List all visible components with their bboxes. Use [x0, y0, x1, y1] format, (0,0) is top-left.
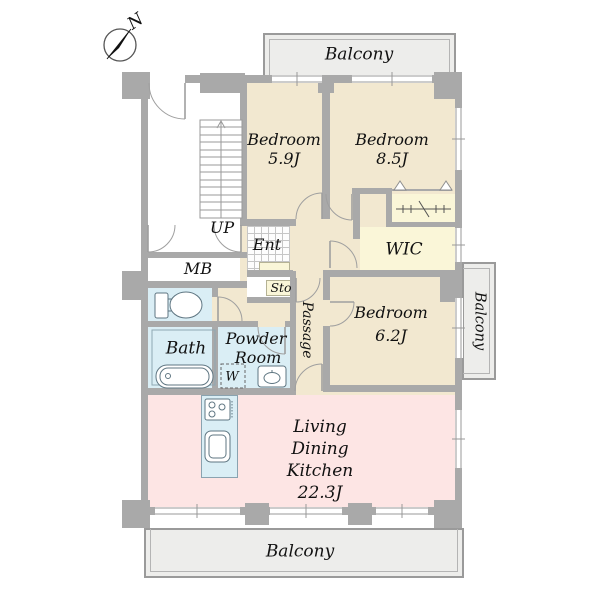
ldk-label-line1: Living — [287, 416, 353, 438]
bedroom1-name: Bedroom — [247, 132, 321, 148]
folding-door-marks — [394, 181, 452, 190]
powder-room-label-1: Powder — [226, 331, 287, 347]
entrance-label: Ent — [253, 237, 281, 253]
bedroom3-name: Bedroom — [354, 305, 428, 321]
powder-sink-icon — [258, 366, 286, 387]
toilet-icon — [155, 292, 202, 318]
door-wic — [330, 241, 357, 268]
bedroom2-name: Bedroom — [355, 132, 429, 148]
door-ldk — [295, 364, 322, 391]
bathtub-icon — [156, 365, 213, 388]
door-bedroom3 — [330, 302, 354, 326]
washer-label: W — [225, 371, 238, 384]
balcony-top-label: Balcony — [325, 47, 393, 64]
compass-icon — [104, 29, 136, 61]
ldk-label-line2: Dining — [287, 438, 353, 460]
door-toilet — [218, 297, 242, 321]
window — [272, 72, 322, 86]
balcony-right-label: Balcony — [472, 292, 487, 350]
wic-label: WIC — [385, 242, 422, 259]
bath-label: Bath — [166, 341, 206, 358]
window — [452, 298, 465, 358]
bedroom3-size: 6.2J — [375, 328, 407, 344]
window — [155, 504, 240, 518]
up-label: UP — [210, 220, 234, 236]
door-bedroom2 — [326, 194, 352, 220]
ldk-label-line3: Kitchen — [287, 460, 353, 482]
door-storage — [296, 278, 320, 302]
storage-label: Sto — [270, 282, 291, 295]
window — [376, 504, 428, 518]
floor-plan: N Balcony Balcony Balcony Bedroom 5.9J B… — [0, 0, 600, 600]
meter-box-label: MB — [184, 261, 212, 277]
closet-hanger-rod — [396, 201, 451, 217]
kitchen-sink-icon — [205, 431, 230, 462]
window — [452, 108, 465, 170]
passage-label: Passage — [300, 301, 314, 358]
door-bedroom1 — [296, 193, 322, 219]
ldk-label-size: 22.3J — [287, 482, 353, 504]
door-stairwell-entry — [149, 83, 185, 119]
stove-icon — [205, 399, 232, 420]
window — [352, 72, 432, 86]
ldk-label: Living Dining Kitchen 22.3J — [287, 416, 353, 504]
window — [452, 410, 465, 468]
window — [452, 228, 465, 262]
plan-linework — [0, 0, 600, 600]
door-hall-left — [148, 225, 175, 252]
staircase — [200, 120, 242, 218]
bedroom2-size: 8.5J — [376, 151, 408, 167]
balcony-bottom-label: Balcony — [266, 544, 334, 561]
window — [270, 504, 342, 518]
powder-room-label-2: Room — [235, 350, 281, 366]
bedroom1-size: 5.9J — [268, 151, 300, 167]
